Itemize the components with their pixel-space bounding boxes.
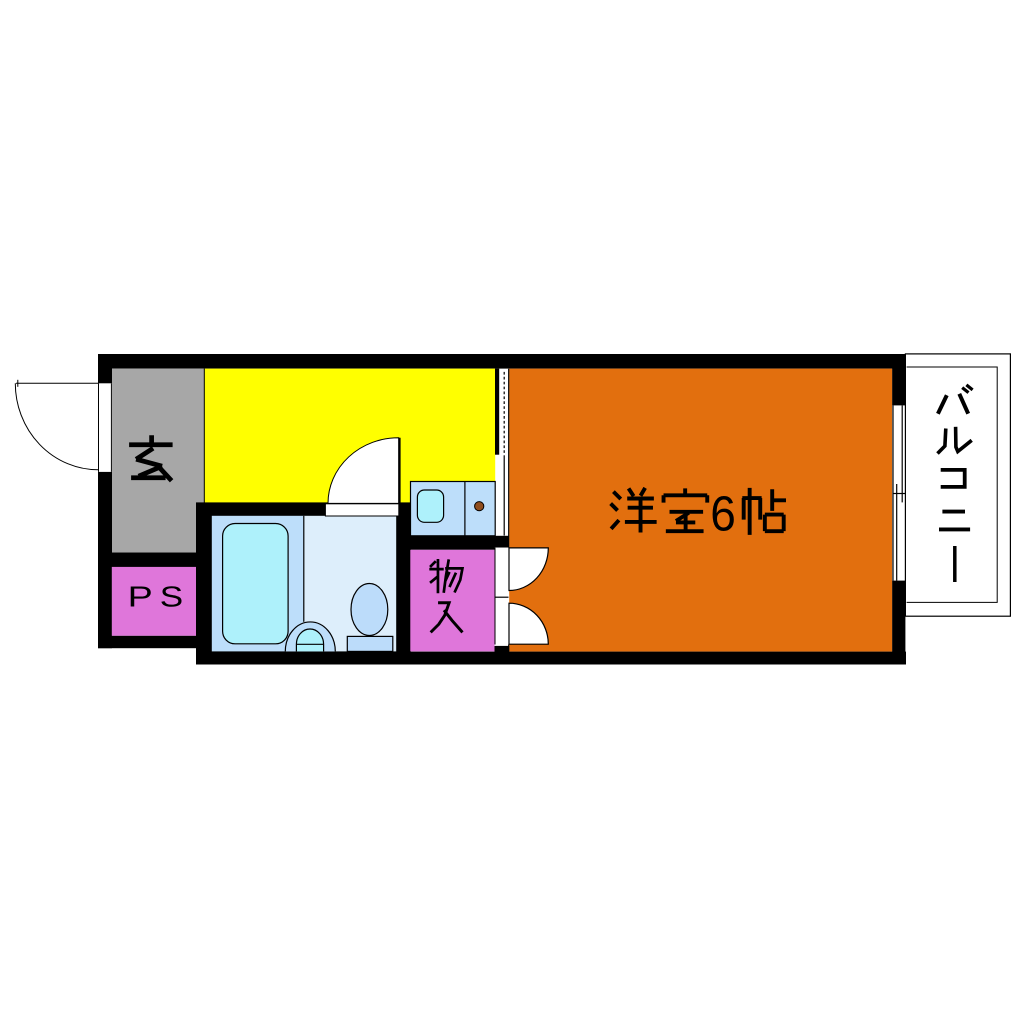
svg-text:6: 6 — [710, 487, 736, 542]
svg-text:P: P — [128, 582, 153, 614]
svg-text:S: S — [160, 580, 183, 612]
